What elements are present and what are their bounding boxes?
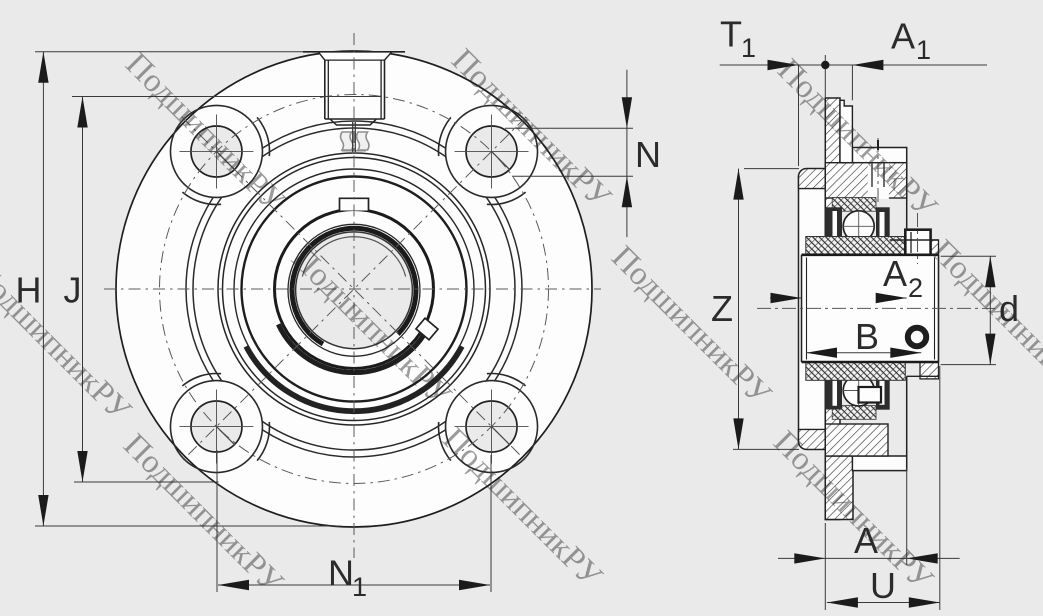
svg-text:J: J [64, 270, 82, 311]
svg-text:A: A [891, 16, 915, 57]
svg-text:N: N [328, 553, 354, 594]
svg-text:ПодшипникРУ: ПодшипникРУ [924, 233, 1043, 407]
svg-text:ПодшипникРУ: ПодшипникРУ [604, 239, 778, 413]
svg-text:1: 1 [741, 33, 756, 63]
svg-text:N: N [635, 134, 661, 175]
svg-text:T: T [720, 14, 742, 55]
svg-text:1: 1 [916, 35, 931, 65]
svg-text:1: 1 [352, 572, 367, 602]
svg-text:2: 2 [908, 273, 923, 303]
svg-text:A: A [883, 253, 907, 294]
svg-text:B: B [855, 316, 879, 357]
